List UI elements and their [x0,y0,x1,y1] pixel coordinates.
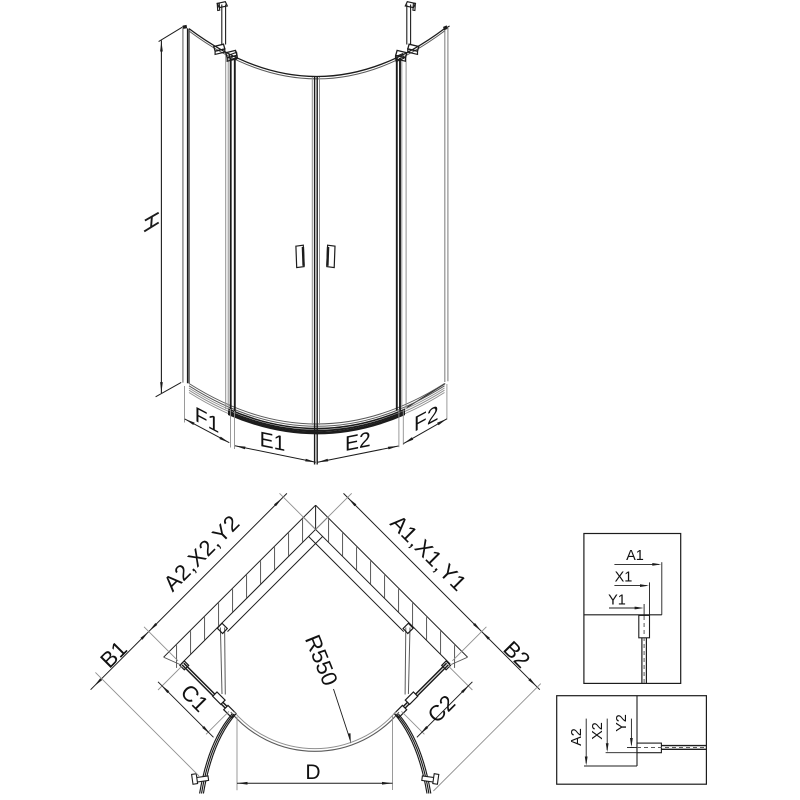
svg-text:Y2: Y2 [614,714,630,732]
svg-text:A1: A1 [626,548,644,564]
svg-text:Y1: Y1 [608,592,626,608]
svg-text:D: D [305,761,320,784]
svg-text:X2: X2 [590,722,606,740]
svg-text:X1: X1 [615,569,633,585]
svg-text:A2: A2 [569,728,585,746]
